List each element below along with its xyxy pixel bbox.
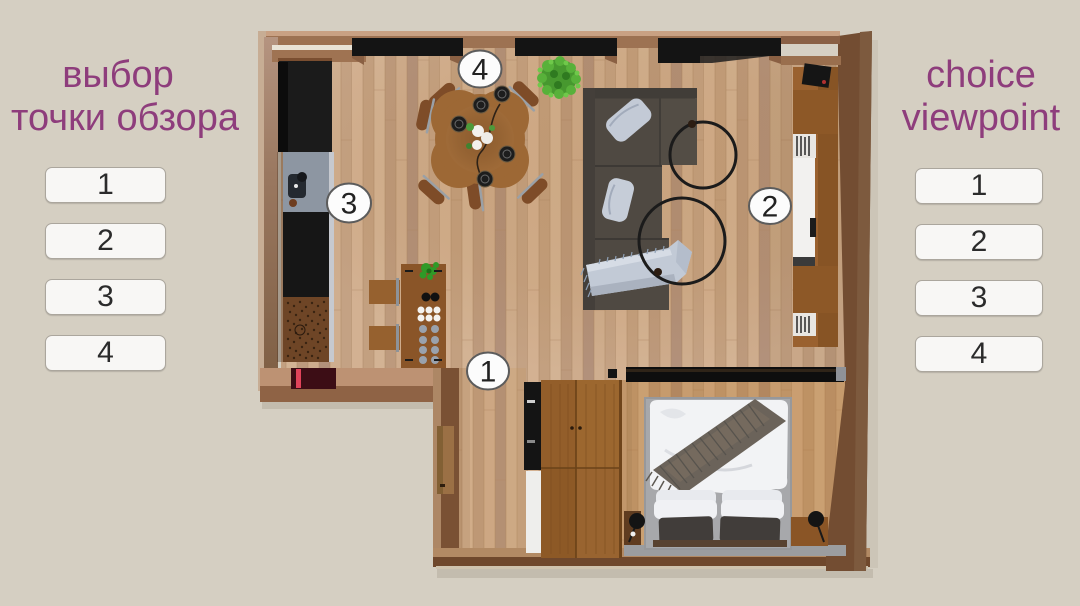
svg-text:1: 1: [480, 356, 497, 389]
svg-text:4: 4: [472, 54, 489, 87]
svg-text:3: 3: [341, 188, 358, 221]
svg-text:2: 2: [762, 191, 779, 224]
